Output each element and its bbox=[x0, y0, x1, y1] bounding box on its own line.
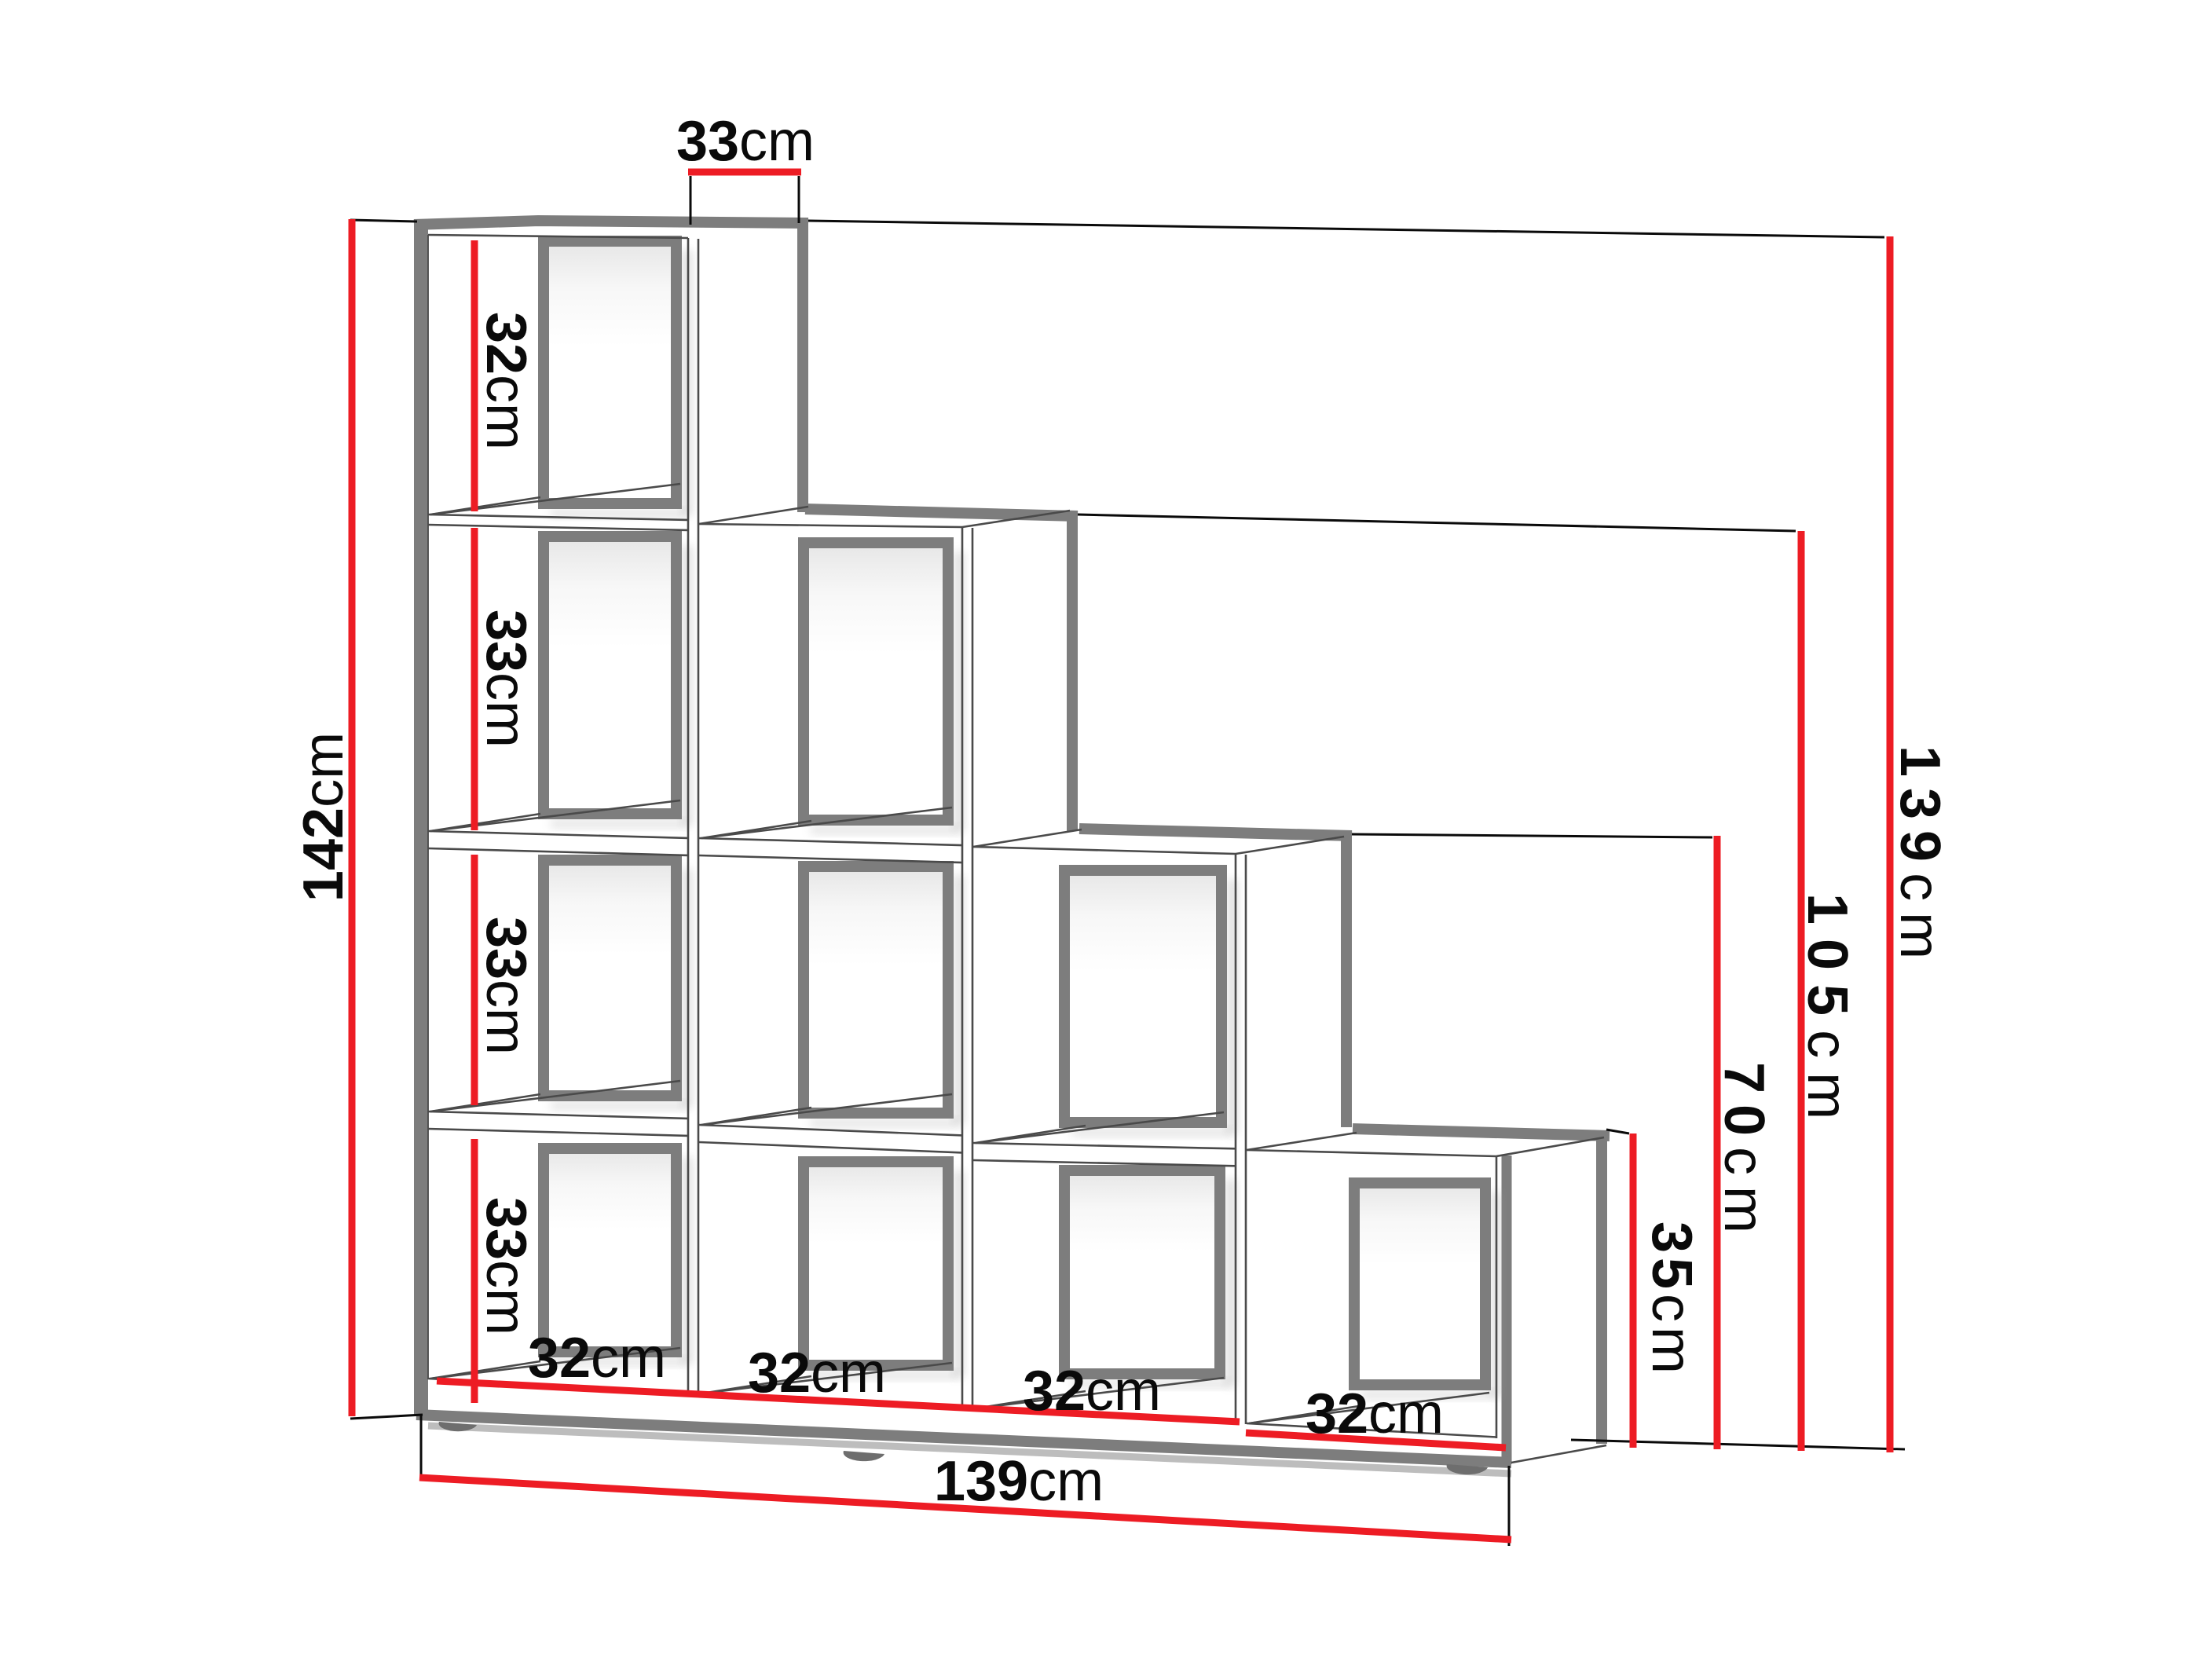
svg-text:105cm: 105cm bbox=[1796, 893, 1859, 1133]
svg-text:139cm: 139cm bbox=[1888, 745, 1951, 970]
svg-text:32cm: 32cm bbox=[528, 1327, 666, 1390]
svg-text:139cm: 139cm bbox=[934, 1450, 1104, 1513]
svg-text:33cm: 33cm bbox=[474, 610, 537, 748]
svg-text:33cm: 33cm bbox=[474, 917, 537, 1055]
svg-text:33cm: 33cm bbox=[676, 110, 815, 173]
svg-text:32cm: 32cm bbox=[1306, 1382, 1444, 1445]
svg-text:32cm: 32cm bbox=[748, 1342, 886, 1404]
svg-text:33cm: 33cm bbox=[474, 1197, 537, 1335]
svg-text:35cm: 35cm bbox=[1640, 1221, 1703, 1379]
svg-text:70cm: 70cm bbox=[1712, 1062, 1775, 1244]
svg-text:142cm: 142cm bbox=[292, 732, 355, 902]
svg-text:32cm: 32cm bbox=[474, 312, 537, 450]
svg-text:32cm: 32cm bbox=[1023, 1360, 1161, 1423]
